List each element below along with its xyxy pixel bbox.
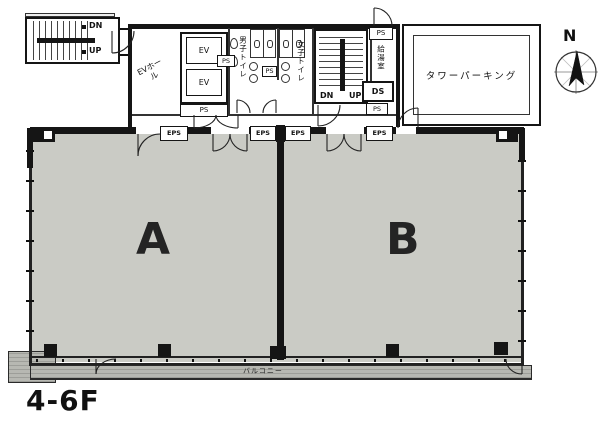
stair-dn-label: DN [88, 22, 103, 30]
stair-up-marker [82, 50, 86, 54]
eps-4-label: EPS [373, 130, 387, 137]
pipe-shaft-below-ds-label: PS [373, 106, 381, 113]
stair-center-rail [37, 38, 95, 43]
pipe-shaft-mens: PS [217, 55, 235, 67]
eps-3: EPS [285, 126, 311, 141]
elevator-2-label: EV [199, 79, 210, 87]
column-bottom-5 [494, 342, 508, 355]
stair-dn-marker [82, 25, 86, 29]
door-opening-a1 [136, 127, 160, 134]
pipe-shaft-ev: PS [180, 104, 228, 117]
stair-center-dn-label: DN [319, 92, 334, 100]
column-bottom-2 [158, 344, 171, 357]
elevator-2: EV [186, 69, 222, 96]
eps-1-label: EPS [167, 130, 181, 137]
sink-mens-1 [249, 62, 258, 71]
eps-4: EPS [366, 126, 393, 141]
floor-title: 4-6F [26, 384, 100, 417]
tower-parking-label: タワーパーキング [426, 68, 518, 82]
ev-hall-label: EVホール [135, 57, 169, 87]
duct-shaft: DS [362, 81, 394, 102]
eps-1: EPS [160, 126, 188, 141]
duct-shaft-label: DS [372, 88, 384, 96]
door-opening-a2 [211, 127, 249, 134]
wall-right-solid-top [519, 128, 525, 162]
pipe-shaft-topright: PS [369, 27, 393, 40]
column-bottom-3 [270, 346, 286, 359]
sink-mens-2 [249, 74, 258, 83]
stair-up-label: UP [88, 47, 102, 55]
divider-top-chunk [276, 125, 285, 142]
pipe-shaft-toilet-mid: PS [262, 66, 277, 77]
door-opening-b1 [326, 127, 364, 134]
pipe-shaft-topright-label: PS [377, 30, 386, 37]
door-opening-corridor [396, 127, 416, 134]
room-a-label: A [136, 218, 170, 262]
column-bottom-1 [44, 344, 57, 357]
mens-stalls [250, 29, 276, 58]
stair-northwest: DN UP [25, 17, 120, 64]
core-wall-bottom [132, 114, 396, 116]
kitchenette-label: 給湯室 [377, 45, 385, 85]
pipe-shaft-below-ds: PS [366, 103, 388, 115]
womens-toilet-label: 女子トイレ [297, 40, 305, 96]
elevator-1-label: EV [199, 47, 210, 55]
sink-womens-2 [281, 74, 290, 83]
pipe-shaft-ev-label: PS [200, 107, 209, 114]
window-mullions-right [518, 160, 526, 346]
urinal-1 [230, 38, 238, 49]
pipe-shaft-toilet-mid-label: PS [265, 68, 273, 75]
partition-a-b [277, 132, 284, 360]
stair-center-up-label: UP [348, 92, 362, 100]
window-sill-line-2 [30, 363, 524, 365]
eps-2-label: EPS [256, 130, 270, 137]
window-mullions-left [26, 150, 34, 346]
room-b-label: B [386, 218, 420, 262]
wall-stair-kitchen [370, 40, 372, 82]
eps-2: EPS [250, 126, 276, 141]
window-mullions-bottom [36, 359, 518, 362]
column-top-left [33, 128, 55, 142]
column-bottom-4 [386, 344, 399, 357]
pipe-shaft-mens-label: PS [222, 58, 230, 65]
column-top-right [496, 128, 518, 142]
sink-womens-1 [281, 62, 290, 71]
compass-icon [548, 42, 604, 98]
floor-plan-4-6f: DN UP EVホール EV EV PS 男子トイレ PS PS [0, 0, 607, 422]
stair-center-rail [340, 39, 345, 91]
core-wall-right [396, 24, 400, 130]
balcony-label: バルコニー [243, 366, 283, 376]
tower-parking: タワーパーキング [402, 24, 541, 126]
eps-3-label: EPS [291, 130, 305, 137]
mens-toilet-label: 男子トイレ [239, 36, 247, 92]
stair-center: DN UP [314, 29, 368, 104]
